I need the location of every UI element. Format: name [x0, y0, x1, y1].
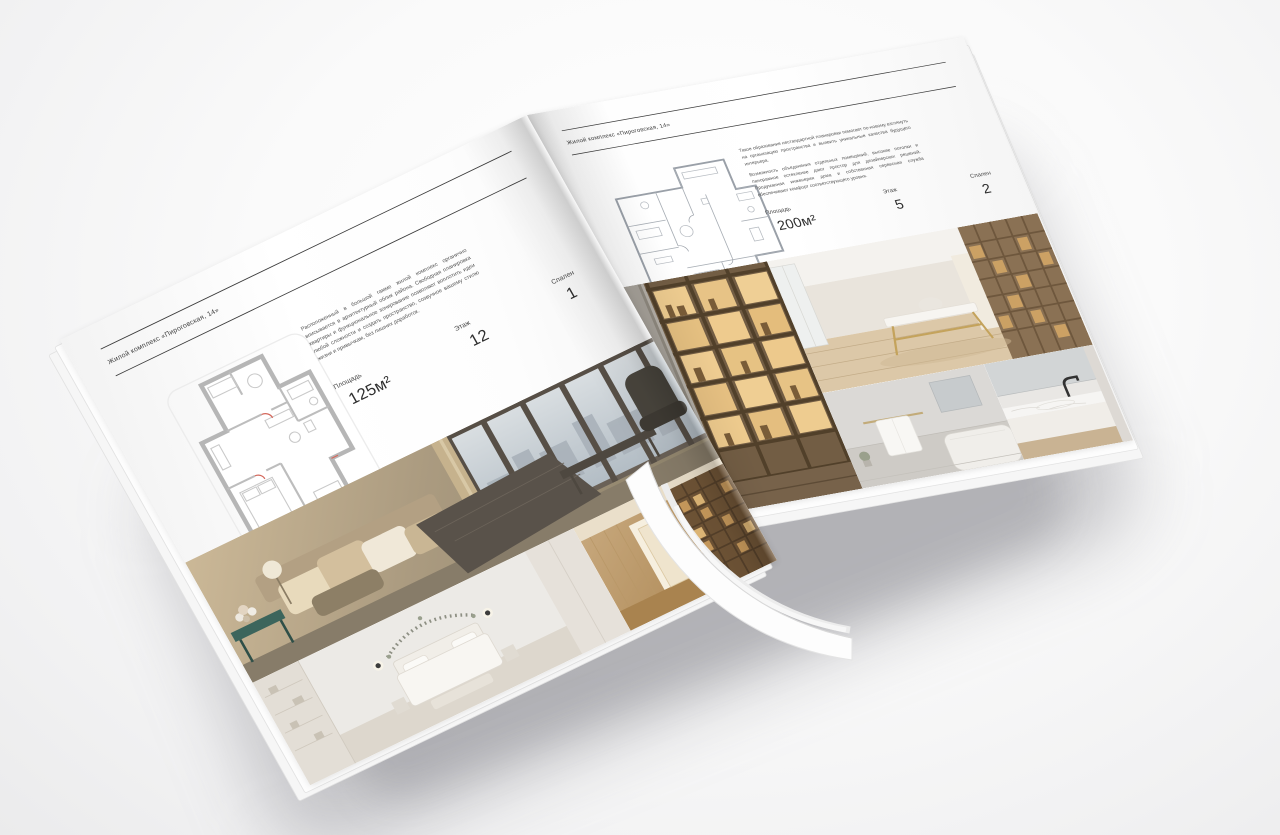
- stat-value: 12: [460, 326, 493, 354]
- stat-value: 2: [973, 180, 1000, 198]
- stat-floor: Этаж 12: [453, 314, 493, 354]
- stat-value: 1: [556, 281, 587, 308]
- stat-bedrooms: Спален 2: [969, 170, 1000, 199]
- left-page-top-rule: [101, 151, 512, 350]
- stat-label: Спален: [969, 170, 992, 180]
- scene-background: Жилой комплекс «Пироговская, 14»: [0, 0, 1280, 835]
- stat-value: 5: [886, 197, 907, 214]
- stat-value: 200м²: [769, 213, 820, 236]
- stat-floor: Этаж 5: [882, 186, 907, 214]
- left-page-header: Жилой комплекс «Пироговская, 14»: [106, 306, 220, 366]
- stat-label: Этаж: [882, 186, 899, 195]
- right-page-header: Жилой комплекс «Пироговская, 14»: [566, 121, 672, 145]
- stat-bedrooms: Спален 1: [550, 269, 588, 308]
